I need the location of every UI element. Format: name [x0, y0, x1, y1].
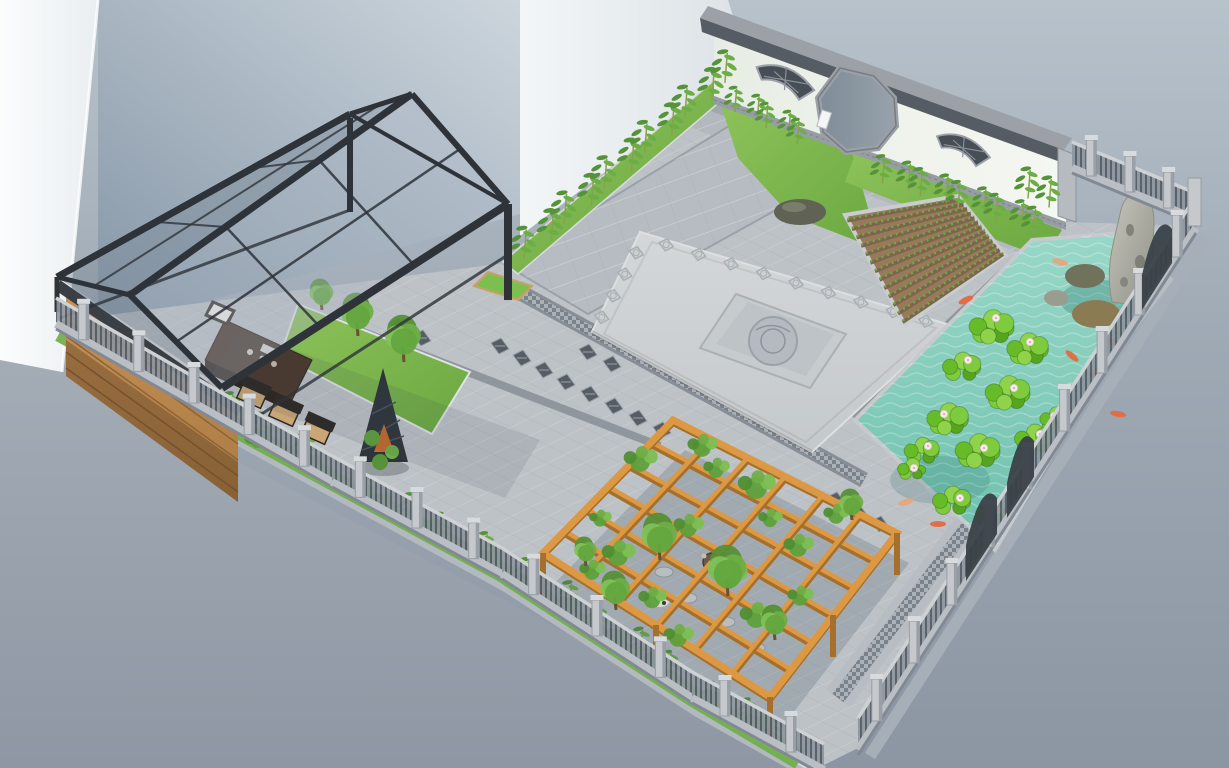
fence-post-cap — [354, 456, 367, 461]
vine-cluster — [703, 461, 713, 471]
moss-rock — [1065, 264, 1105, 288]
fence-post-shade — [1132, 156, 1135, 192]
lotus-pad — [980, 328, 996, 344]
fence-post-shade — [1093, 140, 1096, 176]
fence-post-cap — [654, 636, 667, 641]
lotus-pad — [932, 493, 947, 508]
fence-post-cap — [1124, 151, 1137, 156]
lotus-pad — [898, 463, 910, 475]
fence-post-shade — [306, 430, 309, 466]
vine-cluster — [758, 512, 767, 521]
garden-3d-render — [0, 0, 1229, 768]
taihu-rock-hole — [1135, 255, 1145, 269]
fence-post-shade — [362, 461, 365, 497]
fence-post-cap — [908, 616, 921, 621]
vine-cluster — [602, 545, 615, 558]
tree-canopy — [391, 328, 417, 354]
lotus-pad — [966, 452, 982, 468]
tree-canopy — [765, 615, 785, 635]
corner-fence-post — [1188, 178, 1201, 226]
vine-cluster — [797, 586, 806, 595]
fence-post-cap — [77, 299, 90, 304]
scene-svg — [0, 0, 1229, 768]
lotus-pad — [937, 420, 951, 434]
lotus-flower-center — [959, 497, 962, 500]
fence-post-shade — [419, 492, 422, 528]
vine-cluster — [687, 438, 698, 449]
fence-post-cap — [719, 675, 732, 680]
fence-post-cap — [467, 518, 480, 523]
stepping-stone — [655, 567, 673, 577]
lotus-flower-center — [913, 467, 916, 470]
fence-post-shade — [599, 600, 602, 636]
vine-cluster — [589, 560, 598, 569]
vine-cluster — [579, 563, 589, 573]
vine-cluster — [698, 434, 709, 445]
koi-fish — [930, 521, 946, 527]
fence-post-cap — [945, 558, 958, 563]
fence-post-cap — [1096, 326, 1109, 331]
fence-post-shade — [1067, 389, 1070, 431]
vine-cluster — [787, 589, 797, 599]
tree-canopy — [605, 582, 627, 604]
lotus-flower-center — [1013, 387, 1016, 390]
fence-post-cap — [527, 554, 540, 559]
fence-post-shade — [196, 367, 199, 403]
fence-post-shade — [879, 679, 882, 721]
garden-rock-highlight — [782, 202, 806, 212]
fence-post-cap — [243, 394, 256, 399]
vine-cluster — [614, 540, 626, 552]
fence-post-cap — [132, 330, 145, 335]
fence-post-shade — [476, 523, 479, 559]
vine-cluster — [684, 514, 695, 525]
lotus-pad — [950, 407, 968, 425]
vine-cluster — [636, 446, 648, 458]
fence-post-cap — [1085, 135, 1098, 140]
tree-canopy — [843, 498, 861, 516]
fence-post-shade — [141, 335, 144, 371]
fence-post-cap — [298, 425, 311, 430]
tree-canopy — [714, 560, 743, 589]
fence-post-shade — [251, 399, 254, 435]
lotus-pad — [942, 359, 957, 374]
fence-post-cap — [1058, 384, 1071, 389]
vine-cluster — [794, 534, 805, 545]
fence-post-shade — [727, 680, 730, 716]
tree-canopy — [578, 545, 595, 562]
fence-post-cap — [188, 362, 201, 367]
small-rock — [1044, 290, 1068, 306]
fence-post-shade — [662, 641, 665, 677]
lotus-flower-center — [943, 413, 946, 416]
vine-cluster — [752, 602, 764, 614]
fence-post-shade — [1104, 331, 1107, 373]
taihu-rock-hole — [1126, 224, 1134, 236]
fence-post-shade — [916, 621, 919, 663]
lotus-flower-center — [995, 317, 998, 320]
tea-pot — [702, 554, 707, 559]
lotus-flower-center — [927, 445, 930, 448]
lotus-pad — [1017, 350, 1031, 364]
fence-post-shade — [536, 559, 539, 595]
lotus-flower-center — [1029, 341, 1032, 344]
lotus-pad — [996, 394, 1012, 410]
vine-cluster — [740, 607, 753, 620]
lotus-pad — [904, 444, 918, 458]
vine-cluster — [783, 538, 794, 549]
vine-cluster — [751, 470, 764, 483]
fence-post-cap — [411, 487, 424, 492]
lotus-flower-center — [983, 447, 986, 450]
vine-cluster — [738, 476, 752, 490]
fence-post-shade — [954, 563, 957, 605]
vine-cluster — [713, 458, 722, 467]
lotus-flower-center — [967, 359, 970, 362]
vine-cluster — [649, 587, 659, 597]
fence-post-shade — [793, 716, 796, 752]
stone-spot — [662, 601, 666, 605]
taihu-rock-hole — [1120, 277, 1128, 287]
cone-vine — [372, 454, 388, 470]
fence-post-shade — [86, 304, 89, 340]
vine-cluster — [597, 509, 605, 517]
medallion-relief-circle — [749, 317, 797, 365]
vine-cluster — [624, 451, 637, 464]
fence-post-cap — [1171, 210, 1184, 215]
vine-cluster — [674, 624, 685, 635]
vine-cluster — [767, 509, 776, 518]
fence-post-cap — [870, 674, 883, 679]
vine-cluster — [589, 513, 598, 522]
fence-post-cap — [1162, 167, 1175, 172]
vine-cluster — [823, 507, 833, 517]
vine-cluster — [638, 591, 649, 602]
fence-post-cap — [785, 711, 798, 716]
fence-post-cap — [591, 595, 604, 600]
tree-canopy — [647, 526, 673, 552]
fence-post-shade — [1171, 172, 1174, 208]
fence-post-shade — [1179, 215, 1182, 257]
